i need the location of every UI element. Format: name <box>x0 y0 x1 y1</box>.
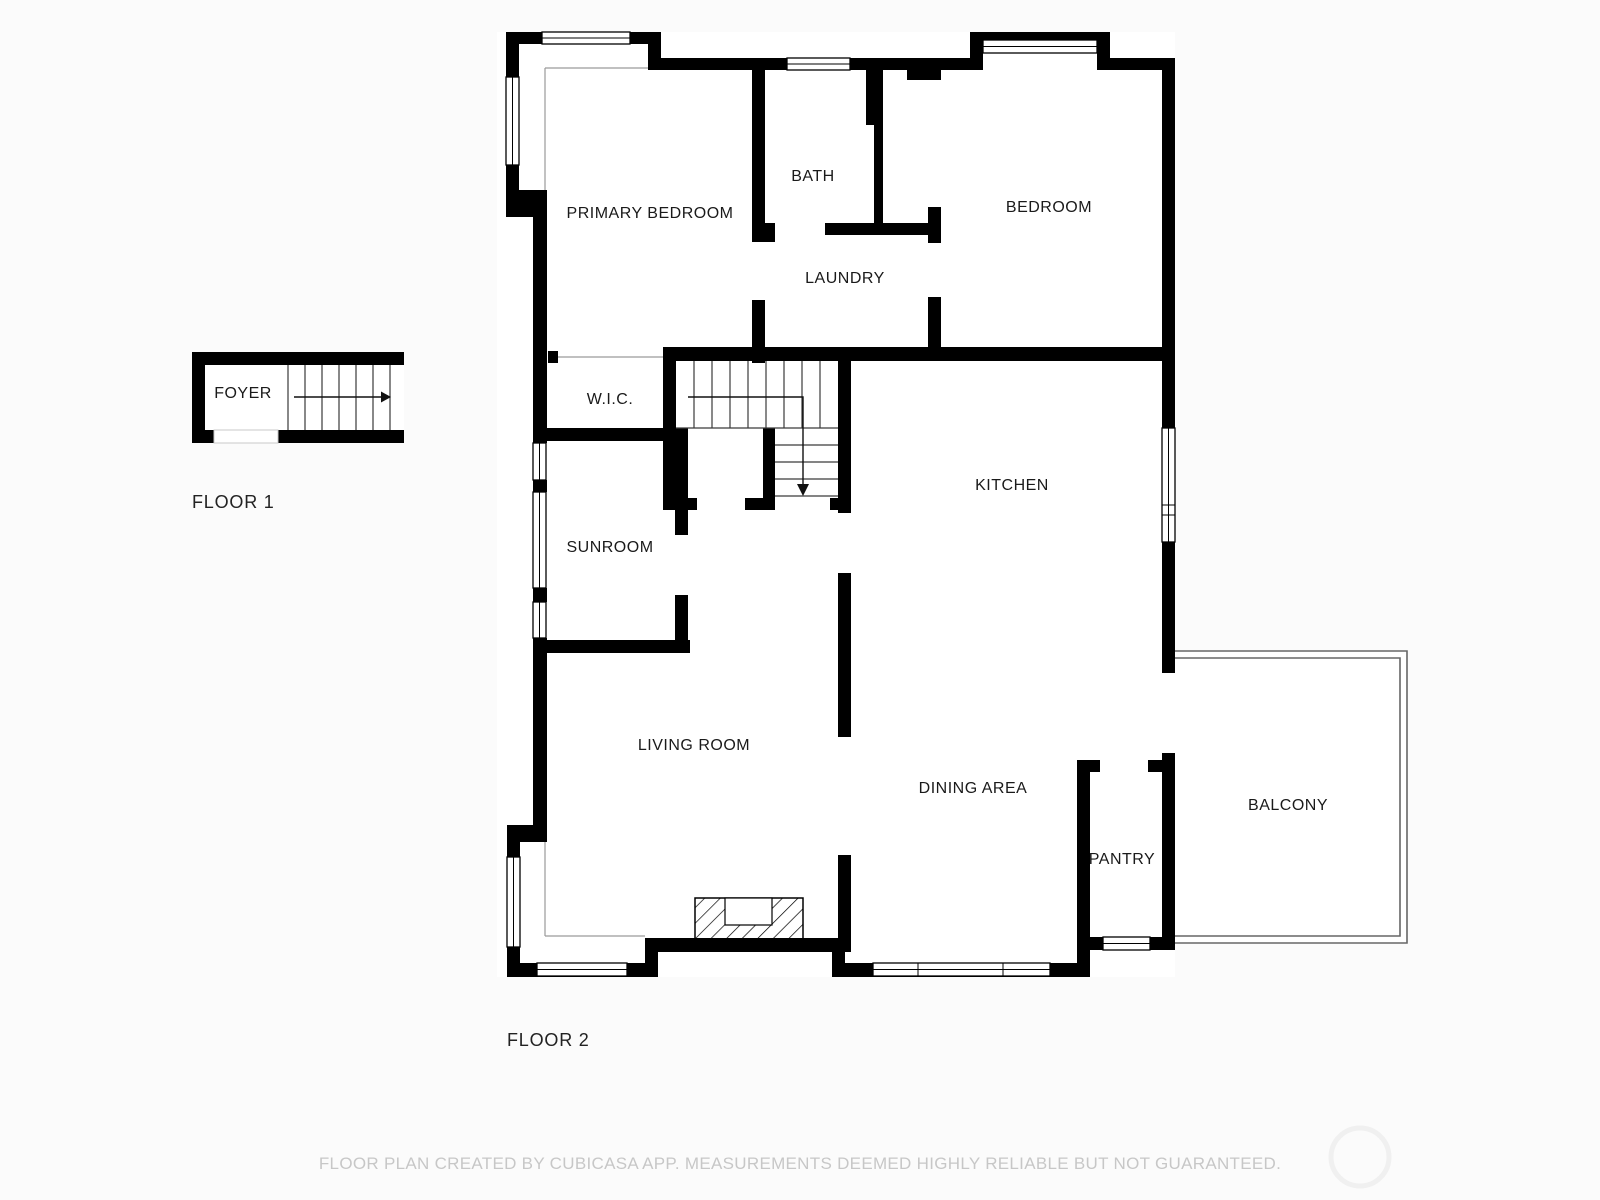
window <box>787 58 850 70</box>
window <box>507 857 520 947</box>
fireplace-icon <box>695 898 803 940</box>
floor2-plan <box>497 32 1408 977</box>
floor1-label: FLOOR 1 <box>192 492 275 512</box>
room-label-foyer: FOYER <box>214 385 272 402</box>
floor-plan-page: FOYER PRIMARY BEDROOM BATH BEDROOM LAUND… <box>0 0 1600 1200</box>
window <box>1162 428 1175 542</box>
window <box>873 963 1050 976</box>
footer-disclaimer: FLOOR PLAN CREATED BY CUBICASA APP. MEAS… <box>319 1154 1281 1173</box>
window <box>537 963 627 976</box>
room-label-kitchen: KITCHEN <box>975 477 1049 494</box>
room-label-wic: W.I.C. <box>587 391 634 408</box>
room-label-bath: BATH <box>791 168 834 185</box>
window <box>533 443 546 480</box>
room-label-living-room: LIVING ROOM <box>638 737 750 754</box>
room-label-sunroom: SUNROOM <box>566 539 653 556</box>
window <box>533 492 546 588</box>
window <box>983 40 1097 53</box>
room-label-primary-bedroom: PRIMARY BEDROOM <box>567 205 734 222</box>
floor-plan-canvas: FOYER PRIMARY BEDROOM BATH BEDROOM LAUND… <box>0 0 1600 1200</box>
room-label-dining-area: DINING AREA <box>919 780 1028 797</box>
watermark-circle-icon <box>1331 1128 1389 1186</box>
room-label-balcony: BALCONY <box>1248 797 1328 814</box>
room-label-bedroom: BEDROOM <box>1006 199 1092 216</box>
window <box>533 602 546 638</box>
window <box>542 32 630 44</box>
window <box>1103 937 1150 950</box>
room-label-pantry: PANTRY <box>1089 851 1155 868</box>
room-label-laundry: LAUNDRY <box>805 270 885 287</box>
floor2-label: FLOOR 2 <box>507 1030 590 1050</box>
foyer-door-opening <box>214 430 278 443</box>
window <box>506 77 519 165</box>
